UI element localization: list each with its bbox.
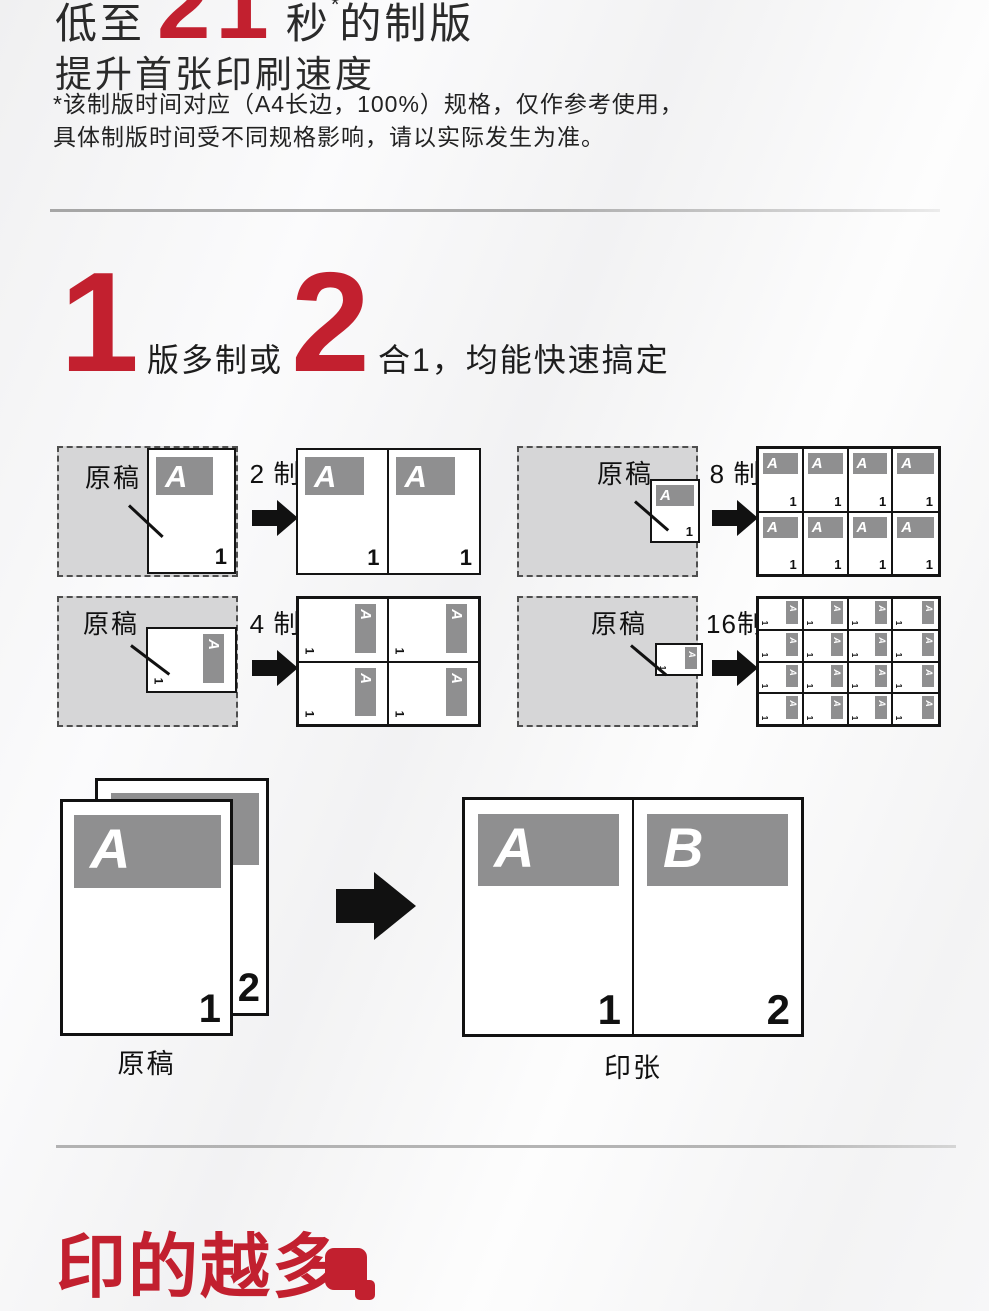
hero-footnote-asterisk: * [331,0,340,18]
content-band: A [875,601,887,624]
nup-page-cell: A1 [299,663,389,725]
content-band: A [685,647,697,669]
page-letter: A [924,605,933,612]
content-band: A [853,453,888,474]
page-number: 1 [879,558,886,571]
page-letter: A [165,461,187,492]
page-letter: A [877,669,886,676]
page-number: 1 [760,621,768,625]
nup-page-cell: A1 [849,631,894,663]
page-letter: A [206,639,221,650]
page-number: 1 [367,547,379,569]
content-band: A [203,634,224,683]
page-number: 2 [767,989,790,1031]
originals-caption: 原稿 [60,1042,233,1081]
content-band: A [853,517,888,538]
page-number: 1 [850,684,858,688]
disclaimer-line-1: *该制版时间对应（A4长边，100%）规格，仅作参考使用， [53,88,684,121]
content-band: A [786,696,798,719]
content-band: A [786,665,798,688]
page-number: 1 [393,711,405,718]
content-band: A [922,696,934,719]
nup-page-cell: A1 [893,599,938,631]
content-band: A [897,517,934,538]
original-label: 原稿 [597,454,653,491]
page-number: 1 [834,495,841,508]
nup-page-cell: A1 [804,449,849,513]
content-band: A [478,814,619,886]
page-number: 1 [393,647,405,654]
content-band: A [396,457,456,495]
nup-page-cell: A1 [893,513,938,575]
content-band: A [875,665,887,688]
page-letter: A [687,651,696,658]
page-letter: A [832,669,841,676]
page-letter: A [901,520,912,535]
page-number: 1 [805,684,813,688]
page-number: 1 [790,495,797,508]
page-number: 1 [805,716,813,720]
page-letter: A [832,701,841,708]
nup-page-cell: A1 [893,449,938,513]
page-number: 1 [303,711,315,718]
section-divider-top [50,209,940,212]
page-letter: A [857,456,868,471]
page-number: 1 [850,652,858,656]
content-band: A [763,517,798,538]
content-band: A [763,453,798,474]
original-page: A 1 [650,479,700,543]
content-band: A [831,601,843,624]
content-band: A [897,453,934,474]
nup-page-cell: A1 [893,663,938,695]
page-letter: A [832,605,841,612]
hero-disclaimer: *该制版时间对应（A4长边，100%）规格，仅作参考使用， 具体制版时间受不同规… [53,88,684,154]
nup-page-cell: A1 [804,599,849,631]
original-label: 原稿 [591,604,647,641]
page-number: 1 [686,525,693,538]
page-number: 1 [926,558,933,571]
original-label: 原稿 [83,604,139,641]
footer-headline: 印的越多 [56,1232,344,1302]
page-number: 1 [790,558,797,571]
original-page: A 1 [147,448,236,574]
page-number: 1 [760,684,768,688]
page-number: 1 [805,621,813,625]
page-letter: A [405,461,427,492]
nup-page-cell: A1 [804,663,849,695]
nup-page-cell: A1 [759,663,804,695]
page-number: 1 [926,495,933,508]
disclaimer-line-2: 具体制版时间受不同规格影响，请以实际发生为准。 [53,121,684,154]
nup-page-cell: A1 [804,694,849,724]
page-letter: A [857,520,868,535]
content-band: A [355,668,376,717]
nup-page-cell: A1 [299,599,389,663]
nup-page-cell: A1 [804,513,849,575]
content-band: A [305,457,364,495]
nup-page-cell: A1 [849,513,894,575]
page-letter: A [767,456,778,471]
page-number: 1 [894,652,902,656]
page-letter: A [787,605,796,612]
nup-result-sheet: A1A1A1A1A1A1A1A1A1A1A1A1A1A1A1A1 [756,596,941,727]
content-band: A [355,604,376,653]
page-letter: A [924,669,933,676]
right-arrow-icon-large [336,872,416,945]
content-band: A [808,517,843,538]
page-letter: A [787,637,796,644]
content-band: A [922,601,934,624]
page-number: 1 [879,495,886,508]
page-letter: A [787,669,796,676]
original-page-1: A 1 [60,799,233,1036]
sheet-left-half: A 1 [465,800,632,1034]
page-letter: A [901,456,912,471]
right-arrow-icon [252,673,298,690]
page-number: 1 [894,716,902,720]
page-letter: A [877,605,886,612]
feature-number-2: 2 [291,252,370,394]
nup-result-sheet: A1A1 [296,448,481,575]
nup-result-sheet: A1A1A1A1A1A1A1A1 [756,446,941,577]
nup-page-cell: A1 [849,599,894,631]
page-letter: A [924,637,933,644]
printed-sheet: A 1 B 2 [462,797,804,1037]
page-number: 1 [199,989,221,1029]
page-number: 1 [460,547,472,569]
nup-diagram-4up: 原稿 A 1 4 制 A1A1A1A1 [57,596,481,727]
feature-heading: 1 版多制或 2 合1，均能快速搞定 [60,252,678,394]
page-letter: A [877,637,886,644]
nup-page-cell: A1 [389,450,480,573]
nup-page-cell: A1 [893,631,938,663]
nup-page-cell: A1 [298,450,389,573]
content-band: A [831,665,843,688]
nup-page-cell: A1 [893,694,938,724]
content-band: B [647,814,788,886]
content-band: A [156,457,213,495]
nup-page-cell: A1 [759,599,804,631]
content-band: A [922,633,934,656]
page-letter: A [314,461,336,492]
content-band: A [446,668,467,717]
nup-page-cell: A1 [849,694,894,724]
content-band: A [656,485,694,506]
page-number: 1 [894,621,902,625]
nup-page-cell: A1 [759,631,804,663]
page-number: 2 [238,968,260,1008]
product-infographic-page: 低至 21 秒 * 的制版 提升首张印刷速度 *该制版时间对应（A4长边，100… [0,0,989,1311]
page-letter: A [924,701,933,708]
page-letter: A [832,637,841,644]
page-number: 1 [303,647,315,654]
content-band: A [875,696,887,719]
feature-number-1: 1 [60,252,139,394]
content-band: A [786,633,798,656]
nup-page-cell: A1 [759,449,804,513]
nup-diagram-2up: 原稿 A 1 2 制 A1A1 [57,446,481,577]
nup-diagram-8up: 原稿 A 1 8 制 A1A1A1A1A1A1A1A1 [517,446,941,577]
nup-result-sheet: A1A1A1A1 [296,596,481,727]
page-letter: A [787,701,796,708]
page-letter: A [812,520,823,535]
content-band: A [875,633,887,656]
page-letter: B [663,820,703,876]
feature-text-1: 版多制或 [147,335,283,381]
page-letter: A [449,673,464,684]
nup-page-cell: A1 [389,599,479,663]
content-band: A [922,665,934,688]
feature-text-2: 合1，均能快速搞定 [378,335,670,381]
page-number: 1 [894,684,902,688]
page-number: 1 [760,716,768,720]
page-number: 1 [850,621,858,625]
nup-diagram-16up: 原稿 A 1 16制 A1A1A1A1A1A1A1A1A1A1A1A1A1A1A… [517,596,941,727]
section-divider-bottom [56,1145,956,1148]
content-band: A [74,815,221,888]
sheet-caption: 印张 [462,1046,804,1085]
page-letter: A [358,609,373,620]
original-page-rotated: A 1 [146,627,237,693]
content-band: A [831,633,843,656]
content-band: A [831,696,843,719]
nup-page-cell: A1 [849,449,894,513]
right-arrow-icon [252,523,298,540]
right-arrow-icon [712,673,758,690]
page-letter: A [812,456,823,471]
content-band: A [808,453,843,474]
page-number: 1 [215,546,227,568]
nup-page-cell: A1 [849,663,894,695]
page-number: 1 [850,716,858,720]
nup-page-cell: A1 [389,663,479,725]
page-letter: A [877,701,886,708]
page-number: 1 [152,678,164,685]
page-number: 1 [598,989,621,1031]
nup-page-cell: A1 [759,694,804,724]
content-band: A [786,601,798,624]
original-label: 原稿 [85,458,141,495]
sheet-right-half: B 2 [632,800,801,1034]
page-number: 1 [760,652,768,656]
page-letter: A [90,821,130,877]
page-letter: A [660,488,671,503]
right-arrow-icon [712,523,758,540]
page-letter: A [449,609,464,620]
page-letter: A [494,820,534,876]
page-number: 1 [834,558,841,571]
page-number: 1 [805,652,813,656]
page-letter: A [358,673,373,684]
content-band: A [446,604,467,653]
speech-bubble-tail-icon [355,1280,375,1300]
nup-page-cell: A1 [804,631,849,663]
page-letter: A [767,520,778,535]
nup-page-cell: A1 [759,513,804,575]
